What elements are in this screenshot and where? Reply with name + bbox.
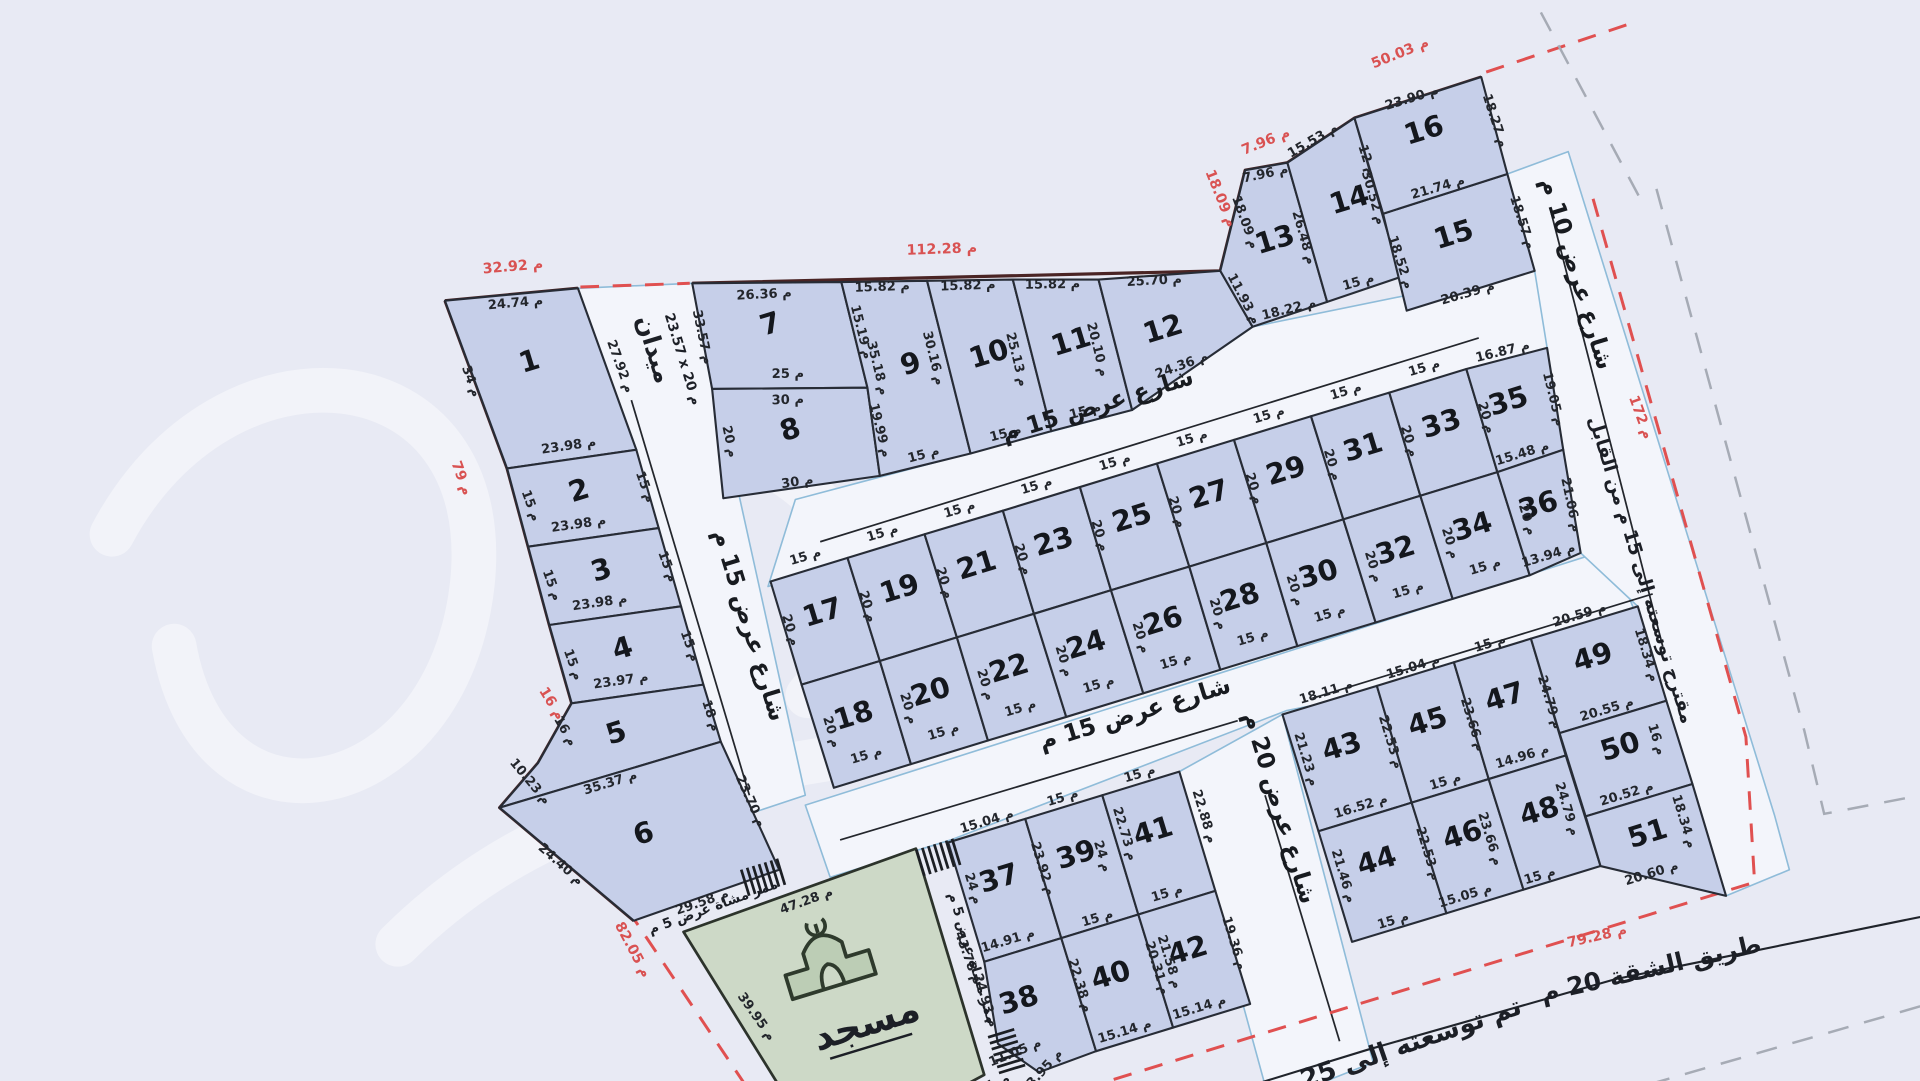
boundary-dim-0: 32.92 م [482,256,544,277]
boundary-dim-7: 50.03 م [1369,35,1431,73]
subdivision-plan: 124.74 م34 م27.92 م23.98 م215 م23.98 م15… [0,0,1920,1081]
boundary-dim-2: 16 م [535,684,567,722]
plot-8-dim-0: 30 م [771,392,804,408]
plot-12-dim-0: 25.70 م [1126,272,1182,290]
boundary-dashed-northeast [1486,24,1630,72]
boundary-dim-8: 7.96 م [1240,125,1293,159]
plot-7-dim-0: 26.36 م [736,286,792,304]
plot-11-dim-0: 15.82 م [1025,277,1081,293]
plot-9-dim-0: 15.82 م [854,279,910,296]
watermark-swirl [112,390,474,781]
boundary-dim-10: 112.28 م [906,240,977,258]
plot-10-dim-0: 15.82 م [940,278,996,295]
boundary-dim-6: 79.28 م [1566,922,1629,951]
plot-7-dim-2: 25 م [772,366,804,382]
subdivision-map-canvas: 124.74 م34 م27.92 م23.98 م215 م23.98 م15… [0,0,1920,1081]
